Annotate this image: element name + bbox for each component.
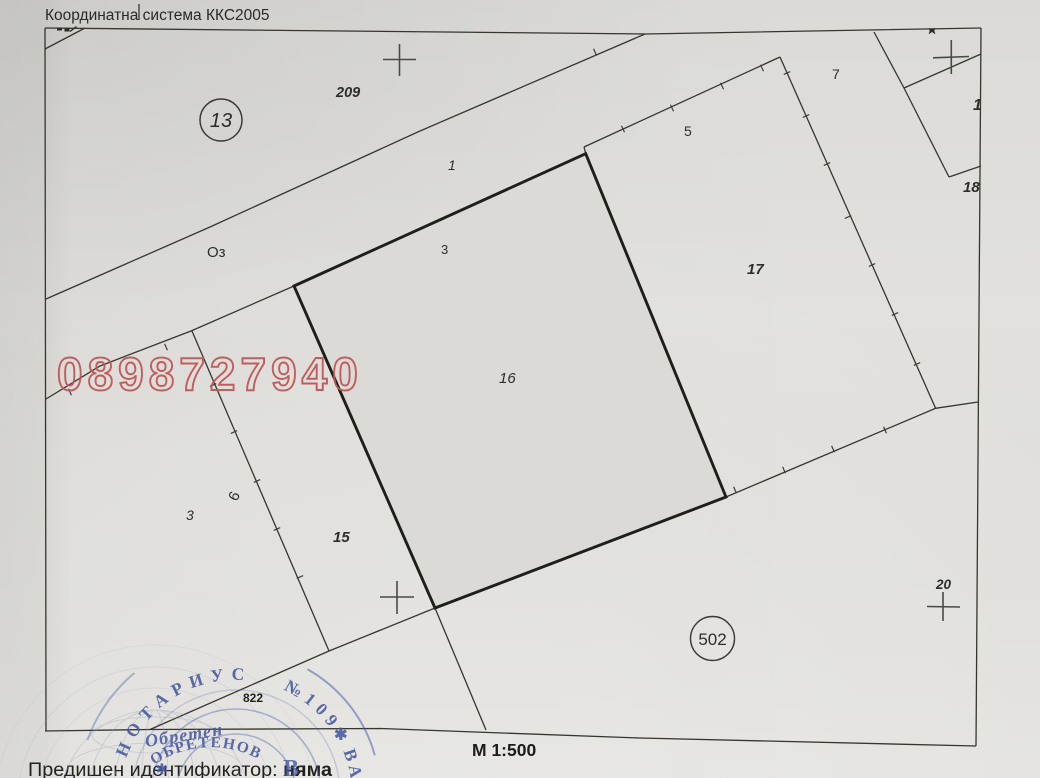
svg-text:Оз: Оз [207,244,226,261]
svg-text:209: 209 [335,85,360,101]
svg-text:16: 16 [499,370,516,387]
svg-text:13: 13 [210,110,232,132]
svg-text:15: 15 [333,529,350,546]
svg-text:3: 3 [441,242,448,257]
svg-text:3: 3 [186,507,194,523]
svg-text:В: В [283,756,299,778]
svg-text:5: 5 [684,123,692,139]
svg-text:7: 7 [832,66,840,82]
svg-text:1: 1 [973,97,982,114]
svg-text:М 1:500: М 1:500 [472,740,536,760]
svg-text:20: 20 [935,577,952,592]
svg-text:18: 18 [963,179,980,196]
svg-text:502: 502 [698,630,726,649]
svg-text:Координатна система ККС2005: Координатна система ККС2005 [45,7,270,24]
svg-text:0898727940: 0898727940 [57,348,363,400]
svg-text:✱: ✱ [156,761,168,777]
svg-text:1: 1 [448,157,456,173]
svg-text:17: 17 [747,261,764,278]
